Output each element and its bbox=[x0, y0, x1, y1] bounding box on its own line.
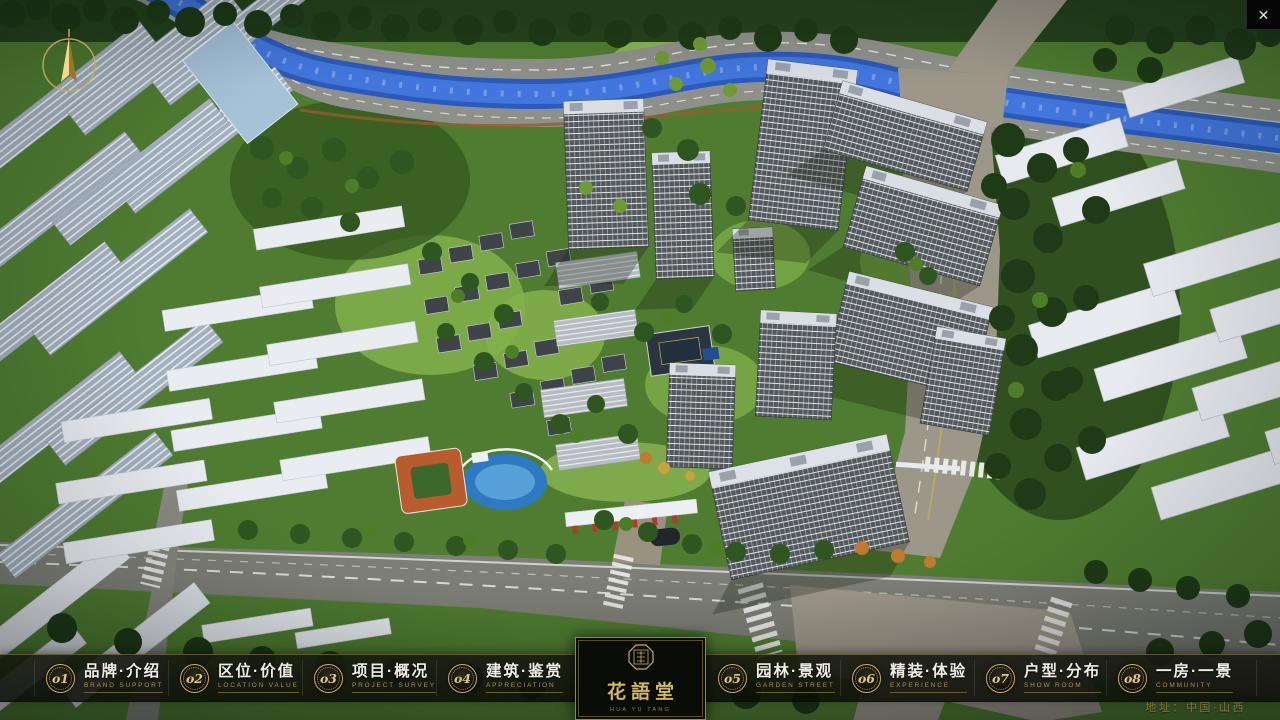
brand-logo-panel[interactable]: 花語堂 HUA YU TANG bbox=[575, 637, 706, 720]
compass-icon bbox=[36, 28, 102, 98]
menu-divider bbox=[974, 660, 975, 696]
masterplan-3d-view[interactable] bbox=[0, 0, 1280, 720]
menu-number-badge: o3 bbox=[314, 664, 343, 693]
menu-divider bbox=[1256, 660, 1257, 696]
menu-item-location[interactable]: o2 区位·价值 LOCATION VALUE bbox=[180, 655, 299, 701]
menu-number-badge: o7 bbox=[986, 664, 1015, 693]
menu-number-badge: o8 bbox=[1118, 664, 1147, 693]
menu-number-badge: o2 bbox=[180, 664, 209, 693]
menu-divider bbox=[436, 660, 437, 696]
brand-subtext: HUA YU TANG bbox=[610, 707, 671, 713]
menu-item-brand[interactable]: o1 品牌·介绍 BRAND SUPPORT bbox=[46, 655, 163, 701]
menu-number-badge: o4 bbox=[448, 664, 477, 693]
sports-court bbox=[394, 448, 467, 515]
menu-item-architecture[interactable]: o4 建筑·鉴赏 APPRECIATION bbox=[448, 655, 563, 701]
menu-divider bbox=[34, 660, 35, 696]
menu-number-badge: o6 bbox=[852, 664, 881, 693]
menu-number-badge: o5 bbox=[718, 664, 747, 693]
menu-number-badge: o1 bbox=[46, 664, 75, 693]
project-address: 地址：中国·山西 bbox=[1145, 699, 1246, 715]
menu-divider bbox=[1106, 660, 1107, 696]
menu-item-interior[interactable]: o6 精装·体验 EXPERIENCE bbox=[852, 655, 967, 701]
brand-seal-icon bbox=[628, 644, 654, 675]
close-icon: ✕ bbox=[1258, 8, 1270, 22]
menu-item-project[interactable]: o3 项目·概况 PROJECT SURVEY bbox=[314, 655, 436, 701]
menu-divider bbox=[168, 660, 169, 696]
menu-divider bbox=[840, 660, 841, 696]
menu-item-views[interactable]: o8 一房·一景 COMMUNITY bbox=[1118, 655, 1233, 701]
menu-item-landscape[interactable]: o5 园林·景观 GARDEN STREET bbox=[718, 655, 835, 701]
menu-divider bbox=[302, 660, 303, 696]
close-button[interactable]: ✕ bbox=[1246, 0, 1280, 30]
brand-name: 花語堂 bbox=[602, 677, 679, 704]
menu-item-floorplans[interactable]: o7 户型·分布 SHOW ROOM bbox=[986, 655, 1101, 701]
